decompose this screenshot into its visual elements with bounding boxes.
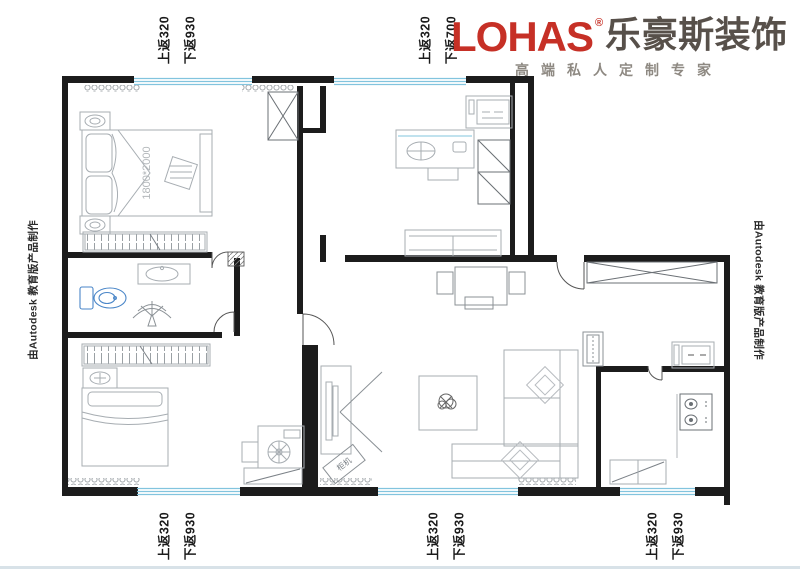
door-swings <box>212 252 662 380</box>
floorplan-drawing: 1800*2000 <box>0 0 800 577</box>
window-bedroom2 <box>137 489 240 495</box>
kitchen-fixtures <box>610 342 714 484</box>
microwave-icon <box>672 342 714 368</box>
single-bed <box>82 388 168 466</box>
bedroom1-door <box>212 252 228 268</box>
vanity-sink <box>138 264 190 284</box>
study-furniture <box>396 96 512 256</box>
coffee-table <box>419 376 477 430</box>
floor-ac-label: 柜机 <box>335 455 354 473</box>
plant-icon <box>438 394 456 409</box>
bedroom2-furniture <box>82 344 304 484</box>
bookshelf <box>82 344 210 366</box>
window-pier <box>252 76 334 83</box>
wall-hatched-pier <box>228 252 244 266</box>
study-sofa <box>405 230 501 256</box>
study-bookcase <box>478 140 510 204</box>
entry-door <box>557 262 584 289</box>
desk-area <box>242 426 304 484</box>
study-desk <box>396 130 474 180</box>
window-living <box>378 489 518 495</box>
radiator-strips <box>68 85 576 485</box>
tv-cabinet <box>321 366 382 454</box>
page-bottom-rule <box>0 566 800 569</box>
av-cabinet <box>83 368 117 388</box>
stove-icon <box>680 394 712 430</box>
shower-icon <box>133 301 171 326</box>
bedroom2-door <box>303 314 334 345</box>
floor-ac-unit: 柜机 <box>323 444 365 483</box>
dining-set <box>437 267 525 309</box>
cushion-diamonds <box>502 367 564 479</box>
sofa-l-shape <box>452 350 578 478</box>
window-kitchen <box>620 489 695 495</box>
bathroom-fixtures <box>80 264 190 326</box>
bed-size-label: 1800*2000 <box>141 146 153 199</box>
toilet-icon <box>80 287 126 309</box>
bedroom1-furniture <box>80 92 298 252</box>
bathroom-door <box>214 312 234 332</box>
bookshelf <box>83 232 207 252</box>
printer-unit <box>466 96 512 128</box>
floorplan-page: 上返320 下返930 上返320 下返700 上返320 下返930 上返32… <box>0 0 800 577</box>
windows <box>134 79 695 495</box>
hall-closet <box>587 262 717 283</box>
living-furniture: 柜机 <box>321 350 578 484</box>
radiator-unit <box>583 332 603 366</box>
sink-cabinet <box>610 460 666 484</box>
kitchen-door <box>648 366 662 380</box>
